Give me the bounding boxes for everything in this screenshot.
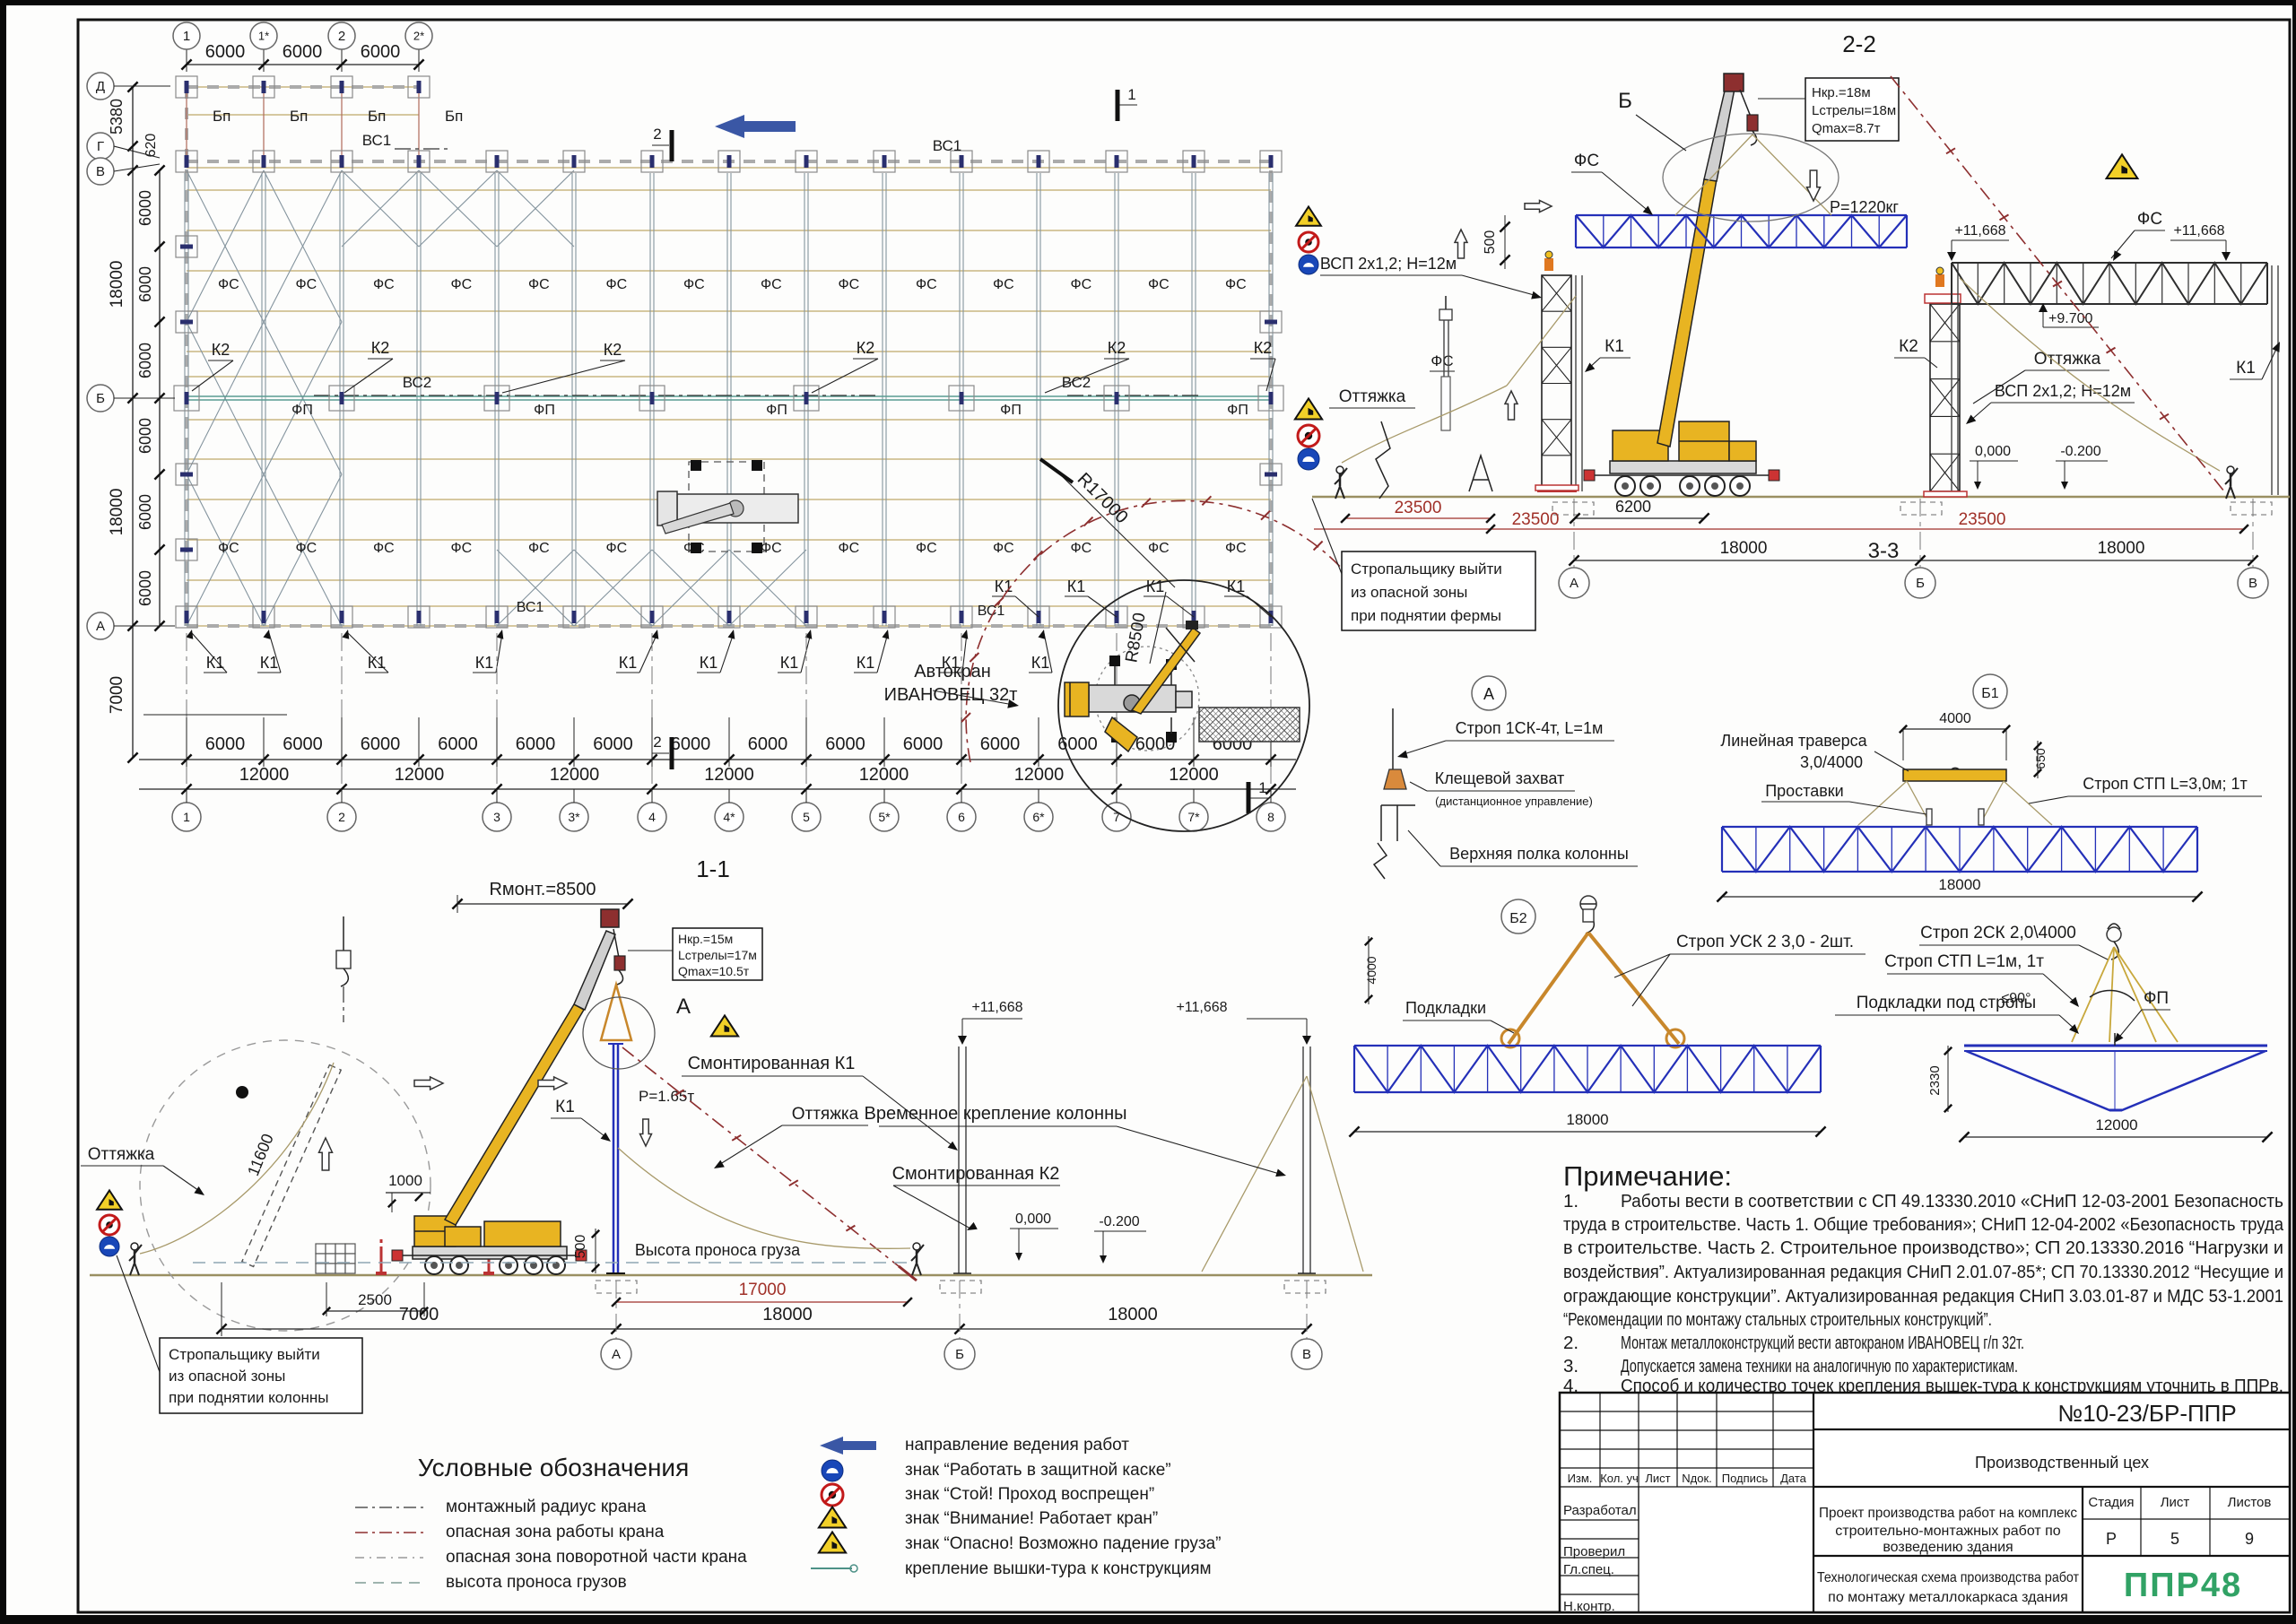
- svg-text:ВС1: ВС1: [517, 600, 544, 615]
- svg-text:воздействия”. Актуализированна: воздействия”. Актуализированная редакция…: [1563, 1262, 2283, 1282]
- svg-text:6000: 6000: [361, 734, 401, 754]
- svg-text:труда в строительстве. Часть 1: труда в строительстве. Часть 1. Общие тр…: [1563, 1214, 2284, 1235]
- svg-text:Строп 1СК-4т, L=1м: Строп 1СК-4т, L=1м: [1456, 719, 1604, 737]
- svg-text:Lстрелы=18м: Lстрелы=18м: [1812, 103, 1896, 118]
- svg-text:2500: 2500: [358, 1291, 392, 1308]
- svg-text:А: А: [1483, 685, 1494, 703]
- svg-text:К2: К2: [857, 339, 875, 357]
- svg-text:К2: К2: [604, 341, 622, 359]
- svg-text:7000: 7000: [108, 676, 126, 714]
- svg-text:18000: 18000: [762, 1305, 813, 1324]
- svg-text:0,000: 0,000: [1015, 1211, 1051, 1227]
- svg-text:1.: 1.: [1563, 1191, 1578, 1211]
- svg-text:1: 1: [183, 29, 190, 44]
- svg-text:ФС: ФС: [606, 541, 628, 556]
- svg-text:Строп 2СК 2,0\4000: Строп 2СК 2,0\4000: [1920, 924, 2076, 942]
- svg-text:3: 3: [493, 810, 500, 824]
- svg-text:Бп: Бп: [213, 108, 230, 125]
- svg-text:3,0/4000: 3,0/4000: [1800, 753, 1863, 771]
- svg-text:Бп: Бп: [290, 108, 308, 125]
- svg-text:ВСП 2x1,2; Н=12м: ВСП 2x1,2; Н=12м: [1320, 255, 1457, 273]
- svg-text:ФС: ФС: [528, 277, 550, 292]
- svg-text:возведению здания: возведению здания: [1883, 1540, 2013, 1555]
- svg-text:Г: Г: [97, 139, 104, 154]
- svg-text:500: 500: [1483, 230, 1498, 255]
- svg-text:ограждающие конструкции”. Акту: ограждающие конструкции”. Актуализирован…: [1563, 1286, 2283, 1307]
- svg-text:18000: 18000: [108, 489, 126, 536]
- svg-text:ФС: ФС: [1071, 277, 1092, 292]
- svg-text:12000: 12000: [1014, 765, 1065, 785]
- svg-text:500: 500: [573, 1235, 588, 1259]
- svg-text:Н.контр.: Н.контр.: [1563, 1599, 1615, 1614]
- svg-text:5: 5: [2170, 1530, 2179, 1548]
- svg-text:направление ведения работ: направление ведения работ: [905, 1436, 1129, 1455]
- svg-text:Lстрелы=17м: Lстрелы=17м: [678, 948, 757, 962]
- svg-text:6*: 6*: [1032, 810, 1045, 824]
- svg-text:К2: К2: [1108, 339, 1126, 357]
- svg-text:ППР48: ППР48: [2124, 1567, 2242, 1604]
- svg-text:ФС: ФС: [1431, 352, 1453, 369]
- svg-text:Нкр.=18м: Нкр.=18м: [1812, 85, 1871, 100]
- svg-text:9: 9: [2245, 1530, 2254, 1548]
- svg-text:К2: К2: [1899, 337, 1918, 356]
- svg-text:+11,668: +11,668: [2173, 223, 2224, 239]
- svg-text:ВС1: ВС1: [362, 132, 392, 149]
- svg-text:ФС: ФС: [218, 277, 239, 292]
- svg-text:18000: 18000: [1566, 1111, 1608, 1128]
- svg-text:Подкладки: Подкладки: [1405, 999, 1486, 1017]
- svg-text:В: В: [96, 164, 105, 179]
- svg-text:ФС: ФС: [296, 541, 317, 556]
- svg-text:ФС: ФС: [993, 277, 1014, 292]
- svg-text:К1: К1: [700, 654, 718, 672]
- svg-text:Оттяжка: Оттяжка: [792, 1105, 859, 1124]
- svg-text:при поднятии колонны: при поднятии колонны: [169, 1389, 328, 1406]
- svg-text:6000: 6000: [593, 734, 633, 754]
- svg-text:ФС: ФС: [606, 277, 628, 292]
- svg-text:12000: 12000: [2095, 1116, 2137, 1133]
- svg-text:К1: К1: [1227, 578, 1246, 595]
- svg-text:ФС: ФС: [373, 277, 395, 292]
- svg-text:1*: 1*: [258, 30, 269, 43]
- svg-text:К2: К2: [212, 341, 230, 359]
- svg-text:+11,668: +11,668: [1954, 223, 2005, 239]
- svg-text:Стадия: Стадия: [2088, 1495, 2134, 1510]
- svg-text:6000: 6000: [136, 418, 154, 454]
- svg-text:К1: К1: [475, 654, 494, 672]
- svg-text:+9.700: +9.700: [2048, 311, 2092, 326]
- svg-text:“Рекомендации по монтажу сталь: “Рекомендации по монтажу стальных строит…: [1563, 1309, 1992, 1330]
- svg-text:Строп СТП L=1м, 1т: Строп СТП L=1м, 1т: [1884, 952, 2044, 971]
- svg-text:2: 2: [338, 810, 345, 824]
- svg-text:ВС2: ВС2: [403, 374, 432, 391]
- svg-text:4000: 4000: [1939, 711, 1971, 726]
- svg-text:Работы вести в соответствии с: Работы вести в соответствии с СП 49.1333…: [1621, 1191, 2283, 1211]
- svg-text:Подпись: Подпись: [1722, 1472, 1769, 1485]
- svg-text:ФС: ФС: [296, 277, 317, 292]
- svg-text:ФС: ФС: [2137, 210, 2162, 229]
- svg-text:В: В: [1302, 1347, 1311, 1362]
- svg-text:12000: 12000: [550, 765, 600, 785]
- svg-text:Примечание:: Примечание:: [1563, 1160, 1732, 1192]
- svg-text:в строительстве. Часть 2. Стро: в строительстве. Часть 2. Строительное п…: [1563, 1238, 2283, 1258]
- svg-text:18000: 18000: [1938, 876, 1980, 893]
- svg-text:ФП: ФП: [534, 403, 555, 418]
- svg-text:18000: 18000: [1108, 1305, 1158, 1324]
- svg-text:6000: 6000: [136, 190, 154, 226]
- svg-text:монтажный радиус кранa: монтажный радиус кранa: [446, 1498, 647, 1516]
- svg-text:P=1.65т: P=1.65т: [639, 1088, 694, 1105]
- svg-text:Монтаж металлоконструкций вест: Монтаж металлоконструкций вести автокран…: [1621, 1333, 2024, 1353]
- svg-text:5*: 5*: [878, 810, 891, 824]
- svg-text:Допускается замена техники на: Допускается замена техники на аналогичну…: [1621, 1356, 2018, 1376]
- svg-text:Нкр.=15м: Нкр.=15м: [678, 932, 733, 946]
- svg-text:знак “Внимание! Работает кран”: знак “Внимание! Работает кран”: [905, 1509, 1158, 1528]
- svg-text:12000: 12000: [1169, 765, 1219, 785]
- svg-text:Условные обозначения: Условные обозначения: [418, 1454, 690, 1481]
- svg-text:620: 620: [143, 134, 159, 158]
- svg-text:Бп: Бп: [368, 108, 386, 125]
- svg-text:Гл.спец.: Гл.спец.: [1563, 1562, 1614, 1577]
- svg-text:1: 1: [183, 810, 190, 824]
- svg-text:23500: 23500: [1959, 510, 2006, 529]
- svg-text:ФС: ФС: [1225, 277, 1247, 292]
- svg-text:P=1220кг: P=1220кг: [1830, 198, 1899, 216]
- svg-text:ФС: ФС: [916, 541, 937, 556]
- svg-text:12000: 12000: [704, 765, 754, 785]
- svg-text:Б1: Б1: [1981, 686, 1999, 701]
- svg-text:Проверил: Проверил: [1563, 1544, 1625, 1559]
- svg-text:знак “Стой! Проход воспрещен”: знак “Стой! Проход воспрещен”: [905, 1485, 1154, 1504]
- svg-text:К1: К1: [2236, 359, 2256, 378]
- svg-text:18000: 18000: [108, 261, 126, 308]
- svg-text:3.: 3.: [1563, 1356, 1578, 1376]
- svg-text:Смонтированная К1: Смонтированная К1: [688, 1054, 856, 1073]
- svg-text:ФС: ФС: [218, 541, 239, 556]
- svg-text:17000: 17000: [739, 1281, 787, 1299]
- svg-text:2: 2: [653, 126, 661, 143]
- svg-text:Технологическая схема производ: Технологическая схема производства работ: [1817, 1570, 2080, 1585]
- svg-text:-0.200: -0.200: [1099, 1214, 1139, 1229]
- svg-text:6000: 6000: [438, 734, 478, 754]
- svg-text:Временное крепление колонны: Временное крепление колонны: [864, 1104, 1126, 1124]
- svg-text:В: В: [2248, 576, 2257, 591]
- svg-text:ФС: ФС: [683, 277, 705, 292]
- svg-text:Проект производства работ на к: Проект производства работ на комплекс: [1819, 1506, 2077, 1521]
- svg-text:18000: 18000: [2098, 539, 2145, 558]
- svg-text:5380: 5380: [108, 99, 126, 135]
- svg-text:Изм.: Изм.: [1568, 1472, 1593, 1485]
- svg-text:12000: 12000: [859, 765, 909, 785]
- svg-text:ФС: ФС: [761, 277, 782, 292]
- svg-text:ФС: ФС: [1148, 277, 1170, 292]
- svg-text:Линейная траверса: Линейная траверса: [1720, 732, 1867, 750]
- svg-text:6000: 6000: [136, 570, 154, 606]
- svg-text:К1: К1: [857, 654, 875, 672]
- svg-text:Лист: Лист: [1645, 1472, 1670, 1485]
- svg-text:2*: 2*: [413, 30, 424, 43]
- svg-text:К1: К1: [1605, 337, 1624, 356]
- svg-text:Qmax=10.5т: Qmax=10.5т: [678, 964, 750, 978]
- svg-text:Б: Б: [1916, 576, 1925, 591]
- svg-text:5: 5: [803, 810, 810, 824]
- svg-text:Стропальщику выйти: Стропальщику выйти: [1351, 560, 1502, 578]
- svg-text:ФС: ФС: [1071, 541, 1092, 556]
- svg-text:Р: Р: [2106, 1530, 2117, 1548]
- svg-text:Бп: Бп: [445, 108, 463, 125]
- svg-text:К1: К1: [780, 654, 799, 672]
- svg-text:ФС: ФС: [839, 277, 860, 292]
- svg-text:ФС: ФС: [373, 541, 395, 556]
- svg-text:опасная зона поворотной части: опасная зона поворотной части крана: [446, 1548, 747, 1567]
- svg-text:ИВАНОВЕЦ 32т: ИВАНОВЕЦ 32т: [884, 685, 1018, 705]
- svg-text:опасная зона работы крана: опасная зона работы крана: [446, 1523, 665, 1541]
- svg-text:12000: 12000: [395, 765, 445, 785]
- svg-text:ФС: ФС: [451, 277, 473, 292]
- svg-text:ФС: ФС: [839, 541, 860, 556]
- svg-text:4*: 4*: [723, 810, 735, 824]
- svg-text:ФП: ФП: [2144, 989, 2169, 1008]
- svg-text:1-1: 1-1: [696, 855, 730, 882]
- svg-text:при поднятии фермы: при поднятии фермы: [1351, 607, 1501, 624]
- svg-text:К1: К1: [555, 1098, 575, 1116]
- svg-text:К2: К2: [371, 339, 390, 357]
- svg-text:Высота проноса груза: Высота проноса груза: [635, 1241, 801, 1259]
- svg-text:высота проноса грузов: высота проноса грузов: [446, 1573, 627, 1592]
- svg-text:18000: 18000: [1720, 539, 1768, 558]
- svg-text:А: А: [676, 994, 691, 1019]
- svg-text:6200: 6200: [1615, 498, 1651, 516]
- svg-text:6000: 6000: [825, 734, 865, 754]
- svg-text:К1: К1: [1146, 578, 1165, 595]
- svg-text:Автокран: Автокран: [914, 662, 991, 682]
- svg-text:ФП: ФП: [1000, 403, 1022, 418]
- svg-text:12000: 12000: [239, 765, 290, 785]
- svg-text:строительно-монтажных работ по: строительно-монтажных работ по: [1835, 1524, 2061, 1539]
- svg-text:0,000: 0,000: [1975, 444, 2011, 459]
- svg-text:Б: Б: [96, 391, 105, 406]
- svg-text:2: 2: [338, 29, 345, 44]
- svg-text:Листов: Листов: [2228, 1495, 2272, 1510]
- svg-text:Б: Б: [955, 1347, 964, 1362]
- svg-text:Дата: Дата: [1780, 1472, 1807, 1485]
- svg-text:ФС: ФС: [1225, 541, 1247, 556]
- svg-text:Qmax=8.7т: Qmax=8.7т: [1812, 121, 1881, 136]
- svg-text:знак “Опасно! Возможно падение: знак “Опасно! Возможно падение груза”: [905, 1534, 1222, 1553]
- svg-text:К1: К1: [1031, 654, 1050, 672]
- svg-text:ФП: ФП: [766, 403, 787, 418]
- svg-text:Подкладки под стропы: Подкладки под стропы: [1857, 994, 2036, 1012]
- svg-text:6000: 6000: [205, 42, 246, 62]
- svg-text:(дистанционное управление): (дистанционное управление): [1435, 795, 1593, 808]
- svg-text:4: 4: [648, 810, 656, 824]
- svg-text:Кол. уч: Кол. уч: [1600, 1472, 1639, 1485]
- svg-text:7000: 7000: [399, 1305, 439, 1324]
- svg-text:Оттяжка: Оттяжка: [1339, 387, 1406, 406]
- svg-text:К1: К1: [1067, 578, 1086, 595]
- svg-text:крепление вышки-тура к констру: крепление вышки-тура к конструкциям: [905, 1559, 1212, 1578]
- svg-text:А: А: [1570, 576, 1578, 591]
- svg-text:ВС1: ВС1: [933, 137, 962, 154]
- svg-text:1: 1: [1127, 86, 1135, 103]
- svg-text:6000: 6000: [516, 734, 556, 754]
- svg-text:Смонтированная К2: Смонтированная К2: [892, 1164, 1060, 1184]
- svg-text:Строп УСК 2 3,0 - 2шт.: Строп УСК 2 3,0 - 2шт.: [1676, 933, 1854, 951]
- svg-text:6000: 6000: [136, 266, 154, 302]
- svg-text:6000: 6000: [283, 42, 323, 62]
- svg-text:ВС2: ВС2: [1062, 374, 1091, 391]
- svg-text:№10-23/БР-ППР: №10-23/БР-ППР: [2057, 1400, 2236, 1427]
- svg-text:6000: 6000: [205, 734, 246, 754]
- svg-text:Строп СТП L=3,0м; 1т: Строп СТП L=3,0м; 1т: [2083, 775, 2248, 793]
- svg-text:+11,668: +11,668: [1176, 1000, 1227, 1015]
- svg-text:2: 2: [653, 734, 661, 751]
- svg-text:Лист: Лист: [2161, 1495, 2190, 1510]
- svg-text:2-2: 2-2: [1842, 30, 1876, 57]
- svg-text:Стропальщику выйти: Стропальщику выйти: [169, 1346, 320, 1363]
- svg-text:Клещевой захват: Клещевой захват: [1435, 769, 1565, 787]
- svg-text:650: 650: [2033, 748, 2048, 769]
- svg-text:7*: 7*: [1187, 810, 1200, 824]
- svg-text:ФС: ФС: [528, 541, 550, 556]
- svg-text:Б: Б: [1618, 89, 1632, 113]
- svg-text:ФП: ФП: [291, 403, 313, 418]
- svg-text:2.: 2.: [1563, 1333, 1578, 1353]
- svg-text:6000: 6000: [283, 734, 323, 754]
- svg-text:ФС: ФС: [993, 541, 1014, 556]
- svg-text:+11,668: +11,668: [971, 1000, 1022, 1015]
- svg-text:1: 1: [1258, 779, 1266, 796]
- svg-text:1000: 1000: [388, 1172, 422, 1189]
- svg-text:23500: 23500: [1512, 510, 1560, 529]
- svg-text:23500: 23500: [1395, 499, 1442, 517]
- svg-text:К1: К1: [206, 654, 225, 672]
- svg-text:К1: К1: [368, 654, 387, 672]
- svg-text:из опасной зоны: из опасной зоны: [169, 1368, 285, 1385]
- svg-text:Оттяжка: Оттяжка: [88, 1145, 155, 1164]
- svg-text:3*: 3*: [568, 810, 580, 824]
- svg-text:А: А: [612, 1347, 621, 1362]
- svg-text:6000: 6000: [748, 734, 788, 754]
- svg-text:6000: 6000: [980, 734, 1021, 754]
- svg-text:Верхняя полка колонны: Верхняя полка колонны: [1449, 845, 1629, 863]
- svg-text:из опасной зоны: из опасной зоны: [1351, 584, 1467, 601]
- svg-text:Производственный цех: Производственный цех: [1975, 1454, 2149, 1472]
- svg-text:Д: Д: [96, 79, 105, 94]
- svg-text:3-3: 3-3: [1868, 539, 1900, 563]
- svg-text:6000: 6000: [361, 42, 401, 62]
- svg-text:8: 8: [1267, 810, 1274, 824]
- svg-text:К2: К2: [1254, 339, 1273, 357]
- svg-text:Разработал: Разработал: [1563, 1503, 1637, 1518]
- svg-text:ФП: ФП: [1227, 403, 1248, 418]
- svg-text:2330: 2330: [1927, 1065, 1943, 1095]
- svg-text:ФС: ФС: [1148, 541, 1170, 556]
- svg-text:А: А: [96, 619, 105, 634]
- svg-text:ФС: ФС: [451, 541, 473, 556]
- svg-text:6: 6: [958, 810, 965, 824]
- svg-text:Nдок.: Nдок.: [1682, 1472, 1712, 1485]
- svg-text:-0.200: -0.200: [2060, 444, 2100, 459]
- svg-text:6000: 6000: [903, 734, 944, 754]
- svg-text:ФС: ФС: [916, 277, 937, 292]
- svg-text:по монтажу металлокаркаса здан: по монтажу металлокаркаса здания: [1828, 1590, 2068, 1605]
- svg-text:ФС: ФС: [1574, 152, 1599, 170]
- svg-text:ВСП 2x1,2; Н=12м: ВСП 2x1,2; Н=12м: [1995, 382, 2131, 400]
- svg-text:К1: К1: [619, 654, 638, 672]
- svg-text:4000: 4000: [1364, 956, 1378, 984]
- svg-text:6000: 6000: [671, 734, 711, 754]
- svg-text:6000: 6000: [136, 494, 154, 530]
- svg-text:знак “Работать в защитной каск: знак “Работать в защитной каске”: [905, 1461, 1171, 1480]
- svg-text:Rмонт.=8500: Rмонт.=8500: [489, 880, 596, 899]
- svg-text:Проставки: Проставки: [1765, 782, 1844, 800]
- svg-text:Б2: Б2: [1509, 911, 1527, 926]
- svg-text:6000: 6000: [136, 343, 154, 378]
